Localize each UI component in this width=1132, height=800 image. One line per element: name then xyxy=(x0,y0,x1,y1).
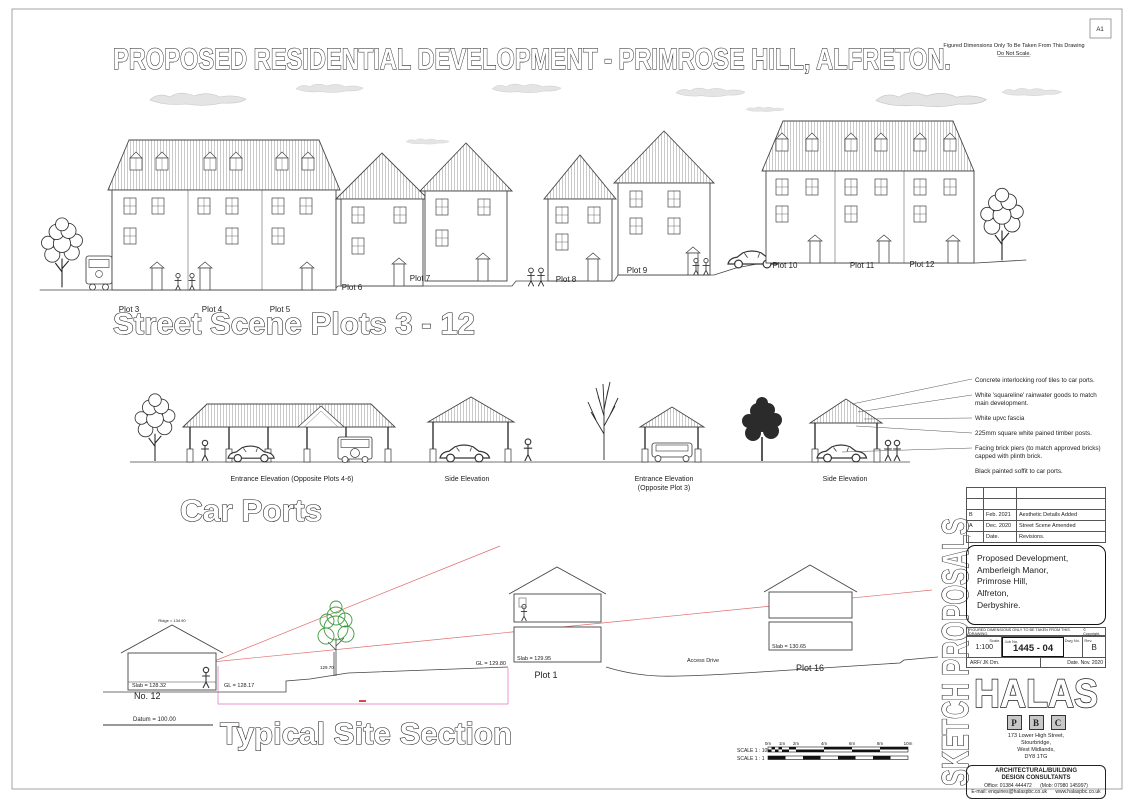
elevation-label: Entrance Elevation (Opposite Plots 4-6) xyxy=(231,476,354,483)
car-icon xyxy=(817,445,867,462)
datum-label: Datum = 100.00 xyxy=(133,717,177,723)
person-icon xyxy=(538,268,545,286)
note-line: capped with plinth brick. xyxy=(975,453,1042,460)
note-line: White 'squareline' rainwater goods to ma… xyxy=(975,392,1097,399)
scale-ticks: 0m 1m 2m 4m 6m 8m 10m xyxy=(765,741,913,746)
street-scene-heading: Street Scene Plots 3 - 12 xyxy=(113,306,475,341)
slab-label: Slab = 128.32 xyxy=(132,683,166,689)
site-section-heading: Typical Site Section xyxy=(220,716,512,751)
dimension-line xyxy=(218,666,508,704)
note-line: Concrete interlocking roof tiles to car … xyxy=(975,377,1095,384)
plot-label: Plot 6 xyxy=(342,283,363,292)
house-label: Plot 16 xyxy=(796,663,824,673)
car-icon xyxy=(440,445,490,462)
strip-text: FIGURED DIMENSIONS ONLY TO BE TAKEN FROM… xyxy=(969,628,1083,636)
drawing-canvas: A1 PROPOSED RESIDENTIAL DEVELOPMENT - PR… xyxy=(0,0,1132,800)
gl-label: GL = 128.17 xyxy=(224,683,254,689)
copyright-text: © Copyright. xyxy=(1083,628,1103,636)
revision-date: Feb. 2021 xyxy=(984,510,1017,521)
rev-label: Rev. xyxy=(1084,638,1092,643)
section-house-plot16 xyxy=(764,565,857,650)
revision-rev: - xyxy=(967,532,984,543)
project-line: Derbyshire. xyxy=(977,600,1105,612)
house-plots-10-12 xyxy=(762,121,974,263)
pbc-letter: B xyxy=(1029,715,1044,730)
scale-job-row: Scale. 1:100 Job No. 1445 - 04 Dwg No. R… xyxy=(966,636,1106,658)
address-line: West Midlands, xyxy=(966,747,1106,754)
house-label: No. 12 xyxy=(134,691,161,701)
svg-text:Figured Dimensions Only To Be: Figured Dimensions Only To Be Taken From… xyxy=(943,43,1084,49)
scale-cell: Scale. 1:100 xyxy=(967,637,1002,657)
svg-text:10m: 10m xyxy=(904,741,913,746)
section-house-no12 xyxy=(121,625,223,690)
house-plots-3-5 xyxy=(108,140,340,290)
plot-label: Plot 7 xyxy=(410,274,431,283)
car-icon xyxy=(228,446,274,462)
car-ports-heading: Car Ports xyxy=(180,493,322,528)
halas-logo: HALAS xyxy=(966,668,1106,714)
address-line: 173 Lower High Street, xyxy=(966,733,1106,740)
title-block: BFeb. 2021Aesthetic Details Added ADec. … xyxy=(966,487,1106,799)
rev-value: B xyxy=(1083,643,1105,652)
house-plot-9 xyxy=(614,131,714,275)
access-drive-label: Access Drive xyxy=(687,658,719,664)
car-front-icon xyxy=(652,443,692,462)
revision-desc xyxy=(1017,499,1106,510)
project-line: Alfreton, xyxy=(977,588,1105,600)
tree-icon xyxy=(981,188,1024,260)
page-title: PROPOSED RESIDENTIAL DEVELOPMENT - PRIMR… xyxy=(113,43,951,76)
company-address: 173 Lower High Street, Stourbridge, West… xyxy=(966,733,1106,762)
carport-side-elevation-1 xyxy=(428,397,514,462)
do-not-scale-note: Figured Dimensions Only To Be Taken From… xyxy=(943,43,1084,57)
street-scene-elevation xyxy=(40,121,1026,290)
revision-desc xyxy=(1017,488,1106,499)
house-plot-7 xyxy=(420,143,512,281)
elevation-label: (Opposite Plot 3) xyxy=(638,485,691,492)
dwg-number-label: Dwg No. xyxy=(1065,638,1080,643)
pbc-letter: P xyxy=(1007,715,1022,730)
svg-text:2m: 2m xyxy=(793,741,800,746)
scale-label: Scale. xyxy=(989,638,1000,643)
carport-side-elevation-2 xyxy=(810,399,882,462)
bare-tree-icon xyxy=(588,382,618,460)
drawing-number-cell: Job No. 1445 - 04 xyxy=(1002,637,1063,657)
note-line: Facing brick piers (to match approved br… xyxy=(975,445,1101,452)
elevation-label: Side Elevation xyxy=(445,476,490,483)
revision-date xyxy=(984,499,1017,510)
paper-size: A1 xyxy=(1096,27,1104,33)
house-plot-6 xyxy=(336,153,428,286)
halas-logo-text: HALAS xyxy=(974,672,1098,714)
elevation-label: Side Elevation xyxy=(823,476,868,483)
car-port-notes: Concrete interlocking roof tiles to car … xyxy=(975,377,1101,475)
suv-icon xyxy=(338,437,372,463)
project-description-box: Proposed Development, Amberleigh Manor, … xyxy=(966,545,1106,625)
scale-1-label: SCALE 1 : 1 xyxy=(737,756,765,762)
person-icon xyxy=(201,440,209,461)
access-drive-ground xyxy=(606,657,938,676)
note-line: Black painted soffit to car ports. xyxy=(975,468,1063,475)
revision-cell: Rev. B xyxy=(1083,637,1105,657)
address-line: DY8 1TG xyxy=(966,754,1106,761)
svg-text:0m: 0m xyxy=(765,741,772,746)
tree-icon xyxy=(41,218,82,287)
project-line: Proposed Development, xyxy=(977,553,1105,565)
van-icon xyxy=(86,256,112,290)
house-label: Plot 1 xyxy=(534,670,557,680)
person-icon xyxy=(528,268,535,286)
car-ports-elevations xyxy=(130,379,972,463)
tree-icon xyxy=(135,394,175,461)
slab-label: Slab = 129.95 xyxy=(517,656,551,662)
plot-label: Plot 10 xyxy=(773,261,798,270)
scale-bar: SCALE 1 : 100 SCALE 1 : 1 0m 1m 2m 4m 6m… xyxy=(737,741,913,762)
plot-label: Plot 8 xyxy=(556,275,577,284)
revision-rev: A xyxy=(967,521,984,532)
plot-label: Plot 12 xyxy=(910,260,935,269)
carport-entrance-plot-3 xyxy=(640,407,704,462)
note-line: White upvc fascia xyxy=(975,415,1025,422)
revision-date: Date. xyxy=(984,532,1017,543)
plot-label: Plot 9 xyxy=(627,266,648,275)
elevation-labels: Entrance Elevation (Opposite Plots 4-6) … xyxy=(231,476,868,492)
drawing-number: 1445 - 04 xyxy=(1003,643,1062,654)
firm-line: ARCHITECTURAL/BUILDING xyxy=(969,768,1103,776)
revision-desc: Revisions. xyxy=(1017,532,1106,543)
scale-value: 1:100 xyxy=(967,644,1001,651)
consultants-box: ARCHITECTURAL/BUILDING DESIGN CONSULTANT… xyxy=(966,765,1106,800)
site-section: Ridge = 134.90 Slab = 128.32 No. 12 GL =… xyxy=(103,546,938,725)
revision-date xyxy=(984,488,1017,499)
pbc-letters: P B C xyxy=(966,715,1106,730)
ridge-label: Ridge = 134.90 xyxy=(158,618,186,623)
svg-text:Do Not Scale.: Do Not Scale. xyxy=(997,51,1031,57)
dwg-number-cell: Dwg No. xyxy=(1064,637,1084,657)
drawing-sheet: A1 PROPOSED RESIDENTIAL DEVELOPMENT - PR… xyxy=(0,0,1132,800)
revision-rev xyxy=(967,499,984,510)
dark-tree-icon xyxy=(742,397,782,461)
revision-desc: Street Scene Amended xyxy=(1017,521,1106,532)
address-line: Stourbridge, xyxy=(966,740,1106,747)
plot-label: Plot 11 xyxy=(850,261,875,270)
tree-level-label: 129.70 xyxy=(320,665,334,670)
person-icon xyxy=(524,439,532,461)
scale-100-label: SCALE 1 : 100 xyxy=(737,748,770,754)
carport-entrance-plots-4-6 xyxy=(183,404,395,463)
figured-dimensions-strip: FIGURED DIMENSIONS ONLY TO BE TAKEN FROM… xyxy=(966,627,1106,636)
note-line: main development. xyxy=(975,400,1028,407)
revision-desc: Aesthetic Details Added xyxy=(1017,510,1106,521)
contact-phone: Office: 01384 444472 (Mob: 07980 145997) xyxy=(969,783,1103,790)
project-line: Amberleigh Manor, xyxy=(977,565,1105,577)
revision-date: Dec. 2020 xyxy=(984,521,1017,532)
elevation-label: Entrance Elevation xyxy=(635,476,694,483)
drawn-date-row: ARF/ JK Drn. Date. Nov. 2020 xyxy=(966,658,1106,668)
job-number-label: Job No. xyxy=(1004,639,1018,644)
project-line: Primrose Hill, xyxy=(977,576,1105,588)
drawn-by: ARF/ JK Drn. xyxy=(967,658,1041,667)
svg-text:8m: 8m xyxy=(877,741,884,746)
svg-text:4m: 4m xyxy=(821,741,828,746)
revision-rev: B xyxy=(967,510,984,521)
section-house-plot1 xyxy=(509,567,606,662)
house-plot-8 xyxy=(544,155,616,281)
slab-label: Slab = 130.65 xyxy=(772,644,806,650)
note-line: 225mm square white pained timber posts. xyxy=(975,430,1092,437)
revision-rev xyxy=(967,488,984,499)
revision-table: BFeb. 2021Aesthetic Details Added ADec. … xyxy=(966,487,1106,543)
person-icon xyxy=(893,440,901,461)
gl-label: GL = 129.80 xyxy=(476,661,506,667)
firm-line: DESIGN CONSULTANTS xyxy=(969,775,1103,783)
svg-text:1m: 1m xyxy=(779,741,786,746)
pbc-letter: C xyxy=(1051,715,1066,730)
svg-text:6m: 6m xyxy=(849,741,856,746)
contact-email: E-mail: enquiries@halaspbc.co.uk www.hal… xyxy=(969,789,1103,796)
date-value: Date. Nov. 2020 xyxy=(1041,660,1105,666)
